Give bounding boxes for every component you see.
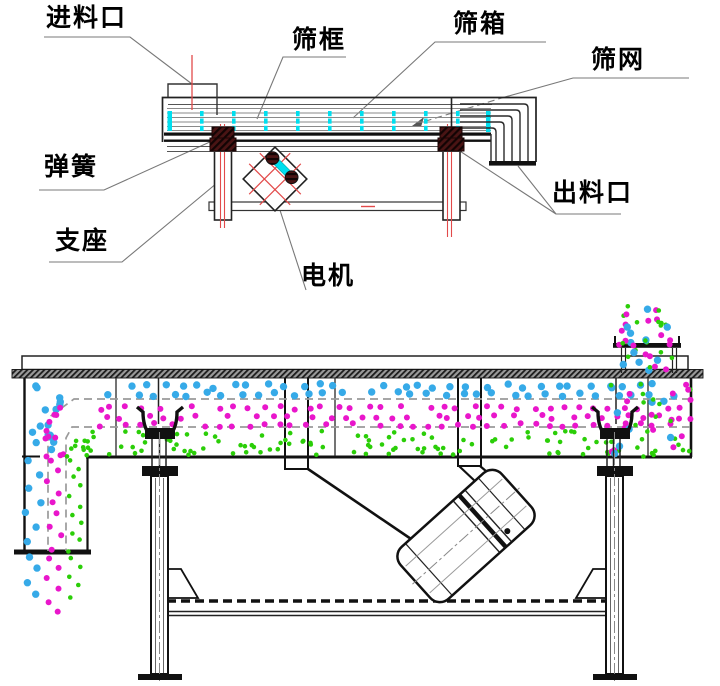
motor-bottom-view xyxy=(389,462,543,610)
particle-fine xyxy=(238,443,243,448)
particle-fine xyxy=(441,446,446,451)
particle-fine xyxy=(78,565,83,570)
particle-fine xyxy=(563,429,568,434)
particle-large xyxy=(423,390,430,397)
particle-medium xyxy=(350,420,356,426)
particle-large xyxy=(563,382,570,389)
particle-medium xyxy=(46,419,52,425)
particle-medium xyxy=(271,413,277,419)
particle-fine xyxy=(243,444,248,449)
particle-fine xyxy=(643,338,648,343)
particle-large xyxy=(36,471,43,478)
leg-foot xyxy=(593,674,637,680)
particle-fine xyxy=(526,435,531,440)
particle-medium xyxy=(638,420,644,426)
particle-medium xyxy=(622,405,628,411)
particle-medium xyxy=(640,415,646,421)
particle-fine xyxy=(594,440,599,445)
particle-fine xyxy=(283,438,288,443)
label-feed-inlet: 进料口 xyxy=(46,6,127,31)
particle-medium xyxy=(229,424,235,430)
leader-lines-top xyxy=(39,37,689,290)
particle-fine xyxy=(84,453,89,458)
particle-large xyxy=(541,390,548,397)
particle-fine xyxy=(174,442,179,447)
particle-fine xyxy=(68,458,73,463)
particle-medium xyxy=(343,415,349,421)
particle-large xyxy=(280,383,287,390)
particle-medium xyxy=(56,565,62,571)
particle-large xyxy=(57,398,64,405)
particle-large xyxy=(556,383,563,390)
diagram-canvas xyxy=(0,0,720,686)
particle-fine xyxy=(143,440,148,445)
particle-fine xyxy=(422,431,427,436)
lid xyxy=(22,356,688,370)
particle-medium xyxy=(373,415,379,421)
particle-fine xyxy=(85,439,90,444)
particle-fine xyxy=(204,431,209,436)
particle-medium xyxy=(397,423,403,429)
particle-fine xyxy=(65,454,70,459)
particle-medium xyxy=(50,499,56,505)
particle-large xyxy=(239,391,246,398)
particle-medium xyxy=(98,407,104,413)
particle-medium xyxy=(470,424,476,430)
particle-large xyxy=(26,553,33,560)
particle-fine xyxy=(130,445,135,450)
particle-medium xyxy=(225,413,231,419)
particle-fine xyxy=(352,450,357,455)
particle-fine xyxy=(186,453,191,458)
particle-medium xyxy=(202,424,208,430)
particle-fine xyxy=(402,438,407,443)
particle-medium xyxy=(533,406,539,412)
particle-medium xyxy=(44,575,50,581)
particle-fine xyxy=(451,452,456,457)
particle-medium xyxy=(663,366,669,372)
particle-large xyxy=(624,323,631,330)
particle-medium xyxy=(576,404,582,410)
spring-right-top-block xyxy=(440,127,462,138)
particle-medium xyxy=(670,444,676,450)
particle-large xyxy=(614,409,621,416)
particle-medium xyxy=(106,404,112,410)
particle-large xyxy=(265,380,272,387)
particle-medium xyxy=(189,403,195,409)
particle-large xyxy=(136,391,143,398)
particle-medium xyxy=(585,413,591,419)
particle-medium xyxy=(147,413,153,419)
particle-fine xyxy=(182,449,187,454)
particle-medium xyxy=(652,364,658,370)
particle-large xyxy=(588,383,595,390)
particle-large xyxy=(37,422,44,429)
particle-large xyxy=(667,434,674,441)
gusset-right xyxy=(576,569,606,598)
particle-fine xyxy=(640,437,645,442)
particle-large xyxy=(645,391,652,398)
particle-fine xyxy=(430,435,435,440)
bottom-view-drawing xyxy=(12,304,703,683)
particle-large xyxy=(271,389,278,396)
label-screen-mesh: 筛网 xyxy=(591,48,645,73)
particle-fine xyxy=(74,439,79,444)
particle-large xyxy=(446,383,453,390)
particle-medium xyxy=(48,458,54,464)
particle-large xyxy=(395,388,402,395)
particle-medium xyxy=(501,423,507,429)
particle-fine xyxy=(509,437,514,442)
particle-medium xyxy=(52,435,58,441)
particle-fine xyxy=(633,423,638,428)
particle-large xyxy=(664,323,671,330)
particle-medium xyxy=(572,423,578,429)
particle-large xyxy=(524,392,531,399)
particle-medium xyxy=(55,609,61,615)
particle-medium xyxy=(688,397,694,403)
particle-fine xyxy=(216,439,221,444)
particle-fine xyxy=(639,382,644,387)
particle-medium xyxy=(217,424,223,430)
particle-medium xyxy=(44,454,50,460)
particle-large xyxy=(648,380,655,387)
particle-fine xyxy=(320,429,325,434)
particle-medium xyxy=(284,413,290,419)
particle-medium xyxy=(511,412,517,418)
particle-large xyxy=(180,382,187,389)
particle-medium xyxy=(571,414,577,420)
particle-large xyxy=(48,446,55,453)
particle-large xyxy=(616,392,623,399)
base-rail xyxy=(209,202,466,211)
particle-fine xyxy=(569,429,574,434)
particle-fine xyxy=(387,452,392,457)
gusset-left xyxy=(168,569,198,598)
particle-medium xyxy=(230,403,236,409)
particle-large xyxy=(204,389,211,396)
discharge-outlet-bar-top xyxy=(489,161,536,166)
particle-large xyxy=(128,382,135,389)
particle-medium xyxy=(51,412,57,418)
spring-left-block xyxy=(210,138,236,151)
particle-fine xyxy=(392,430,397,435)
particle-fine xyxy=(586,446,591,451)
particle-large xyxy=(32,523,39,530)
particle-fine xyxy=(213,434,218,439)
particle-medium xyxy=(518,420,524,426)
particle-fine xyxy=(66,549,71,554)
particle-fine xyxy=(416,447,421,452)
particle-fine xyxy=(141,433,146,438)
particle-fine xyxy=(250,443,255,448)
particle-fine xyxy=(321,445,326,450)
particle-fine xyxy=(461,438,466,443)
particle-medium xyxy=(317,403,323,409)
particle-large xyxy=(620,361,627,368)
particle-large xyxy=(42,406,49,413)
particle-medium xyxy=(116,416,122,422)
particle-medium xyxy=(49,547,55,553)
particle-large xyxy=(104,391,111,398)
particle-fine xyxy=(504,445,509,450)
particle-medium xyxy=(643,351,649,357)
particle-medium xyxy=(287,422,293,428)
particle-medium xyxy=(329,415,335,421)
leader-feed-inlet xyxy=(44,37,192,84)
particle-large xyxy=(443,392,450,399)
particle-fine xyxy=(681,448,686,453)
particle-medium xyxy=(58,452,64,458)
particle-medium xyxy=(245,405,251,411)
particle-fine xyxy=(657,402,662,407)
particle-medium xyxy=(514,406,520,412)
particle-fine xyxy=(77,537,82,542)
particle-large xyxy=(32,382,39,389)
particle-large xyxy=(22,509,29,516)
particle-medium xyxy=(56,586,62,592)
particle-medium xyxy=(623,311,629,317)
particle-medium xyxy=(123,422,129,428)
particle-fine xyxy=(137,430,142,435)
deck-hatched-bar xyxy=(12,370,703,379)
particle-large xyxy=(512,392,519,399)
particle-large xyxy=(182,393,189,400)
particle-large xyxy=(538,383,545,390)
particle-fine xyxy=(76,467,81,472)
particle-fine xyxy=(676,443,681,448)
leader-screen-box xyxy=(353,42,546,118)
particle-medium xyxy=(484,403,490,409)
particle-medium xyxy=(247,424,253,430)
particle-fine xyxy=(687,449,692,454)
particle-medium xyxy=(476,415,482,421)
particle-large xyxy=(462,383,469,390)
particle-large xyxy=(193,381,200,388)
particle-fine xyxy=(553,431,558,436)
particle-fine xyxy=(581,452,586,457)
particle-fine xyxy=(258,450,263,455)
particle-medium xyxy=(157,406,163,412)
particle-medium xyxy=(645,318,651,324)
particle-fine xyxy=(657,308,662,313)
support-leg-left-top xyxy=(215,151,232,220)
particle-medium xyxy=(377,404,383,410)
leg-foot xyxy=(138,674,182,680)
particle-fine xyxy=(620,341,625,346)
particle-large xyxy=(32,591,39,598)
particle-medium xyxy=(57,405,63,411)
particle-medium xyxy=(308,406,314,412)
particle-large xyxy=(150,393,157,400)
particle-large xyxy=(24,538,31,545)
particle-large xyxy=(519,384,526,391)
particle-fine xyxy=(107,452,112,457)
particle-medium xyxy=(619,328,625,334)
particle-medium xyxy=(484,423,490,429)
particle-large xyxy=(255,392,262,399)
particle-large xyxy=(25,485,32,492)
label-discharge-outlet: 出料口 xyxy=(552,181,633,206)
particle-fine xyxy=(123,429,128,434)
particle-fine xyxy=(364,434,369,439)
motor-brace-long xyxy=(308,469,414,541)
particle-fine xyxy=(69,446,74,451)
particle-medium xyxy=(604,406,610,412)
particle-large xyxy=(635,359,642,366)
particle-medium xyxy=(367,404,373,410)
particle-large xyxy=(301,383,308,390)
particle-fine xyxy=(645,429,650,434)
particle-large xyxy=(619,383,626,390)
particle-fine xyxy=(582,437,587,442)
particle-medium xyxy=(262,421,268,427)
particle-fine xyxy=(609,383,614,388)
particle-fine xyxy=(648,365,653,370)
label-motor: 电机 xyxy=(301,264,355,289)
vibrating-screen-diagram: 进料口 筛框 筛箱 筛网 弹簧 支座 电机 出料口 xyxy=(0,0,720,686)
particle-large xyxy=(143,381,150,388)
particle-medium xyxy=(658,332,664,338)
particle-medium xyxy=(192,413,198,419)
particle-medium xyxy=(56,491,62,497)
label-screen-frame: 筛框 xyxy=(292,28,346,53)
particle-large xyxy=(29,429,36,436)
particle-medium xyxy=(410,424,416,430)
particle-fine xyxy=(276,447,281,452)
particle-medium xyxy=(404,415,410,421)
particle-medium xyxy=(46,599,52,605)
particle-medium xyxy=(44,478,50,484)
particle-medium xyxy=(347,405,353,411)
particle-medium xyxy=(137,422,143,428)
spring-right-block xyxy=(438,138,464,151)
particle-dots xyxy=(22,304,694,615)
particle-fine xyxy=(668,419,673,424)
particle-fine xyxy=(81,445,86,450)
particle-large xyxy=(414,382,421,389)
particle-medium xyxy=(160,415,166,421)
particle-medium xyxy=(44,428,50,434)
particle-medium xyxy=(45,434,51,440)
spring-left-top-block xyxy=(212,127,234,138)
particle-fine xyxy=(231,451,236,456)
particle-large xyxy=(317,380,324,387)
particle-fine xyxy=(70,531,75,536)
label-screen-box: 筛箱 xyxy=(453,12,507,37)
particle-medium xyxy=(425,424,431,430)
leader-screen-frame xyxy=(257,57,346,119)
particle-medium xyxy=(54,510,60,516)
particle-fine xyxy=(67,494,72,499)
particle-medium xyxy=(292,407,298,413)
particle-fine xyxy=(185,432,190,437)
particle-fine xyxy=(670,356,675,361)
particle-fine xyxy=(547,451,552,456)
particle-large xyxy=(473,390,480,397)
particle-large xyxy=(403,383,410,390)
particle-fine xyxy=(380,442,385,447)
particle-large xyxy=(592,392,599,399)
particle-large xyxy=(33,564,40,571)
particle-fine xyxy=(493,437,498,442)
spring-support-left xyxy=(137,407,183,683)
particle-medium xyxy=(55,467,61,473)
particle-medium xyxy=(677,405,683,411)
particle-fine xyxy=(244,450,249,455)
particle-medium xyxy=(665,406,671,412)
particle-fine xyxy=(69,556,74,561)
particle-large xyxy=(291,392,298,399)
particle-large xyxy=(505,380,512,387)
particle-large xyxy=(305,390,312,397)
particle-large xyxy=(33,439,40,446)
particle-medium xyxy=(262,404,268,410)
label-support: 支座 xyxy=(55,229,109,254)
particle-large xyxy=(319,389,326,396)
particle-large xyxy=(163,381,170,388)
particle-fine xyxy=(288,431,293,436)
particle-fine xyxy=(309,442,314,447)
particle-fine xyxy=(133,451,138,456)
particle-fine xyxy=(356,433,361,438)
particle-medium xyxy=(687,416,693,422)
particle-fine xyxy=(458,449,463,454)
particle-large xyxy=(644,306,651,313)
particle-fine xyxy=(67,575,72,580)
particle-medium xyxy=(97,424,103,430)
particle-medium xyxy=(389,416,395,422)
particle-medium xyxy=(559,424,565,430)
particle-fine xyxy=(201,446,206,451)
particle-fine xyxy=(641,454,646,459)
particle-fine xyxy=(651,397,656,402)
particle-medium xyxy=(679,433,685,439)
particle-fine xyxy=(70,513,75,518)
particle-fine xyxy=(278,441,283,446)
particle-large xyxy=(242,381,249,388)
particle-medium xyxy=(676,416,682,422)
particle-medium xyxy=(323,421,329,427)
particle-fine xyxy=(422,446,427,451)
particle-medium xyxy=(539,412,545,418)
particle-medium xyxy=(47,524,53,530)
particle-medium xyxy=(549,416,555,422)
particle-medium xyxy=(398,403,404,409)
particle-large xyxy=(559,393,566,400)
particle-medium xyxy=(649,412,655,418)
leader-screen-mesh xyxy=(505,78,689,97)
particle-fine xyxy=(73,444,78,449)
particle-fine xyxy=(626,355,631,360)
particle-fine xyxy=(68,595,73,600)
particle-medium xyxy=(439,424,445,430)
particle-medium xyxy=(437,413,443,419)
particle-medium xyxy=(604,423,610,429)
particle-fine xyxy=(364,452,369,457)
particle-large xyxy=(217,392,224,399)
particle-fine xyxy=(626,304,631,309)
particle-medium xyxy=(630,343,636,349)
particle-fine xyxy=(438,451,443,456)
particle-large xyxy=(232,381,239,388)
particle-medium xyxy=(58,532,64,538)
particle-fine xyxy=(91,435,96,440)
particle-fine xyxy=(546,438,551,443)
particle-fine xyxy=(139,449,144,454)
particle-medium xyxy=(455,422,461,428)
particle-fine xyxy=(79,521,84,526)
